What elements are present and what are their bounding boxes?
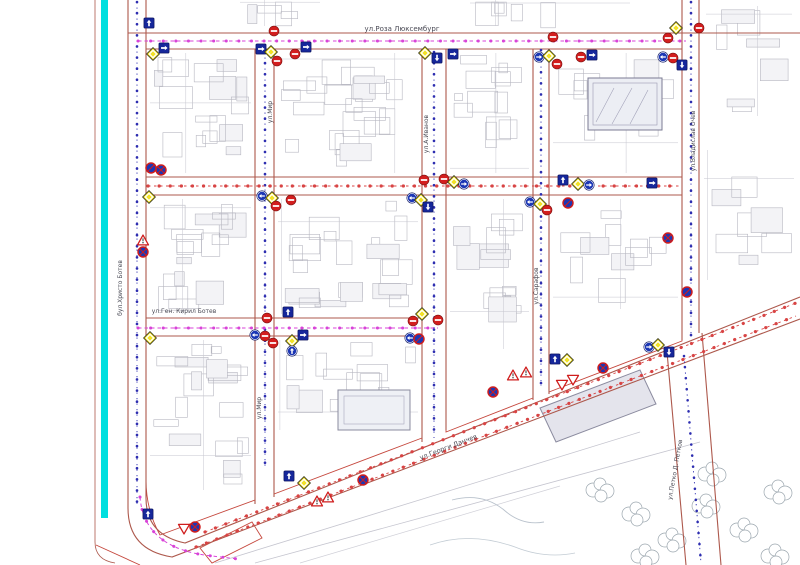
no-entry-sign-icon — [663, 33, 673, 43]
priority-road-sign-icon — [572, 178, 585, 191]
no-entry-sign-icon — [408, 316, 418, 326]
one-way-street-sign-icon — [144, 18, 154, 28]
mandatory-right-sign-icon — [534, 52, 544, 62]
one-way-right-sign-icon — [301, 42, 311, 52]
one-way-street-sign-icon — [143, 509, 153, 519]
street-label-gen-kiril-botev: ул.Ген. Кирил Ботев — [152, 308, 217, 315]
no-entry-sign-icon — [260, 331, 270, 341]
city-block — [146, 49, 255, 177]
no-parking-sign-icon — [146, 163, 156, 173]
no-entry-sign-icon — [542, 205, 552, 215]
one-way-street-sign-icon — [550, 354, 560, 364]
give-way-sign-icon — [568, 375, 579, 385]
one-way-right-sign-icon — [448, 49, 458, 59]
no-parking-sign-icon — [414, 334, 424, 344]
one-way-right-sign-icon — [587, 50, 597, 60]
park-layer — [215, 432, 792, 565]
one-way-down-sign-icon — [432, 53, 442, 63]
street-label-mir-south: ул.Мир — [256, 397, 263, 419]
no-stopping-sign-icon — [190, 522, 200, 532]
street-label-sarafov: ул.Сарафов — [533, 267, 540, 304]
give-way-sign-icon — [179, 524, 190, 534]
street-label-roza-luxemburg: ул.Роза Люксембург — [365, 25, 440, 33]
no-entry-sign-icon — [271, 201, 281, 211]
street-label-mir-north: ул.Мир — [267, 101, 274, 123]
one-way-street-sign-icon — [283, 307, 293, 317]
no-entry-sign-icon — [286, 195, 296, 205]
mandatory-right-sign-icon — [459, 179, 469, 189]
pond-edge — [430, 538, 575, 555]
buildings-layer — [150, 0, 794, 490]
one-way-right-sign-icon — [159, 43, 169, 53]
street-label-hristo-botev: бул.Христо Ботев — [117, 260, 124, 316]
mandatory-left-sign-icon — [257, 191, 267, 201]
street-label-georgi-danchev: ул.Георги Данчев — [418, 432, 478, 461]
no-entry-sign-icon — [272, 56, 282, 66]
warning-triangle-sign-icon — [521, 367, 532, 377]
mandatory-left-sign-icon — [658, 52, 668, 62]
traffic-organization-map: ул.Роза Люксембург бул.Христо Ботев ул.М… — [0, 0, 800, 565]
one-way-down-sign-icon — [423, 202, 433, 212]
no-entry-sign-icon — [419, 175, 429, 185]
pond-edge — [452, 498, 544, 523]
map-canvas: ул.Роза Люксембург бул.Христо Ботев ул.М… — [0, 0, 800, 565]
no-entry-sign-icon — [268, 338, 278, 348]
street-label-a-ivanov: ул.А.Иванов — [423, 114, 430, 153]
no-entry-sign-icon — [262, 313, 272, 323]
priority-road-sign-icon — [143, 191, 156, 204]
no-stopping-sign-icon — [138, 247, 148, 257]
mandatory-straight-sign-icon — [287, 346, 297, 356]
no-entry-sign-icon — [576, 52, 586, 62]
warning-triangle-sign-icon — [138, 235, 149, 245]
no-entry-sign-icon — [552, 59, 562, 69]
no-stopping-sign-icon — [156, 165, 166, 175]
one-way-right-sign-icon — [298, 330, 308, 340]
warning-triangle-sign-icon — [508, 370, 519, 380]
no-stopping-sign-icon — [358, 475, 368, 485]
block-edge — [96, 545, 140, 565]
canal-water — [101, 0, 108, 518]
mandatory-right-sign-icon — [584, 180, 594, 190]
large-building — [588, 78, 662, 130]
street-label-vladislav-ochev: ул.Владислав Очев — [690, 110, 697, 171]
mandatory-left-sign-icon — [250, 330, 260, 340]
street-label-petko-petkov: ул.Петко Д. Петков — [667, 439, 685, 501]
one-way-right-sign-icon — [647, 178, 657, 188]
mandatory-left-sign-icon — [525, 197, 535, 207]
no-entry-sign-icon — [433, 315, 443, 325]
no-entry-sign-icon — [269, 26, 279, 36]
no-stopping-sign-icon — [488, 387, 498, 397]
no-entry-sign-icon — [668, 53, 678, 63]
priority-road-sign-icon — [298, 477, 311, 490]
one-way-street-sign-icon — [284, 471, 294, 481]
priority-road-sign-icon — [561, 354, 574, 367]
no-parking-sign-icon — [563, 198, 573, 208]
no-entry-sign-icon — [548, 32, 558, 42]
no-stopping-sign-icon — [598, 363, 608, 373]
no-entry-sign-icon — [290, 49, 300, 59]
street-edge-petkov-east — [702, 333, 721, 565]
one-way-down-sign-icon — [677, 60, 687, 70]
no-entry-sign-icon — [694, 23, 704, 33]
trees-layer — [586, 462, 792, 565]
one-way-street-sign-icon — [558, 175, 568, 185]
no-parking-sign-icon — [682, 287, 692, 297]
city-block — [446, 49, 533, 177]
no-stopping-sign-icon — [663, 233, 673, 243]
one-way-down-sign-icon — [664, 347, 674, 357]
